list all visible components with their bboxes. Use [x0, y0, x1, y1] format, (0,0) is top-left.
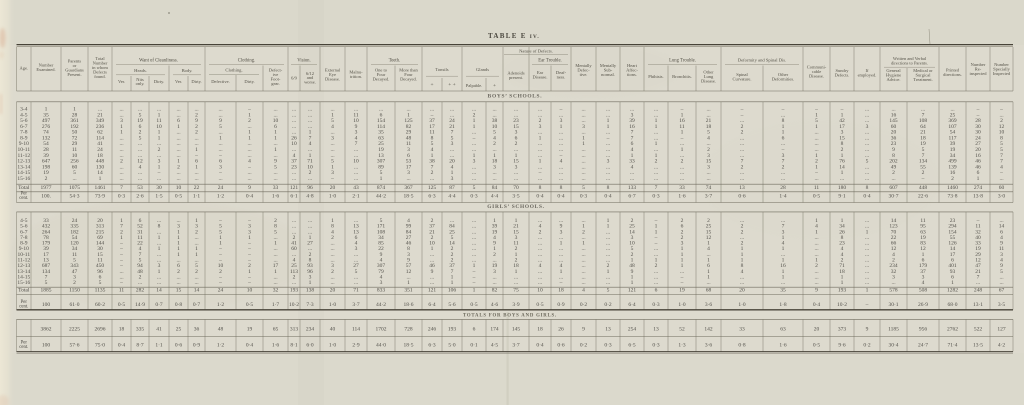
- svg-text:Written and Verbaldirections t: Written and Verbaldirections to Parents.: [891, 56, 928, 66]
- svg-text:Nature of Defects.: Nature of Defects.: [519, 48, 553, 53]
- svg-text:Palpable.: Palpable.: [466, 83, 483, 88]
- svg-text:NumberSpeciallyInspected: NumberSpeciallyInspected: [993, 62, 1011, 76]
- svg-text:Bronchitis.: Bronchitis.: [672, 74, 692, 79]
- svg-text:Nitsonly.: Nitsonly.: [136, 77, 145, 86]
- svg-text:GeneralHygieneAdvice.: GeneralHygieneAdvice.: [886, 68, 901, 82]
- svg-text:Body.: Body.: [182, 68, 193, 73]
- svg-text:GIRLS’ SCHOOLS.: GIRLS’ SCHOOLS.: [487, 204, 544, 210]
- svg-text:Teeth.: Teeth.: [389, 59, 401, 64]
- svg-text:6/9: 6/9: [291, 76, 298, 81]
- svg-text:SundryDefects.: SundryDefects.: [835, 68, 850, 78]
- svg-text:BOYS’ SCHOOLS.: BOYS’ SCHOOLS.: [488, 94, 543, 100]
- svg-text:Deaf-ness.: Deaf-ness.: [556, 70, 567, 80]
- svg-text:Ver.: Ver.: [175, 79, 182, 84]
- svg-text:Dirty.: Dirty.: [244, 79, 254, 84]
- svg-text:Adenoidspresent.: Adenoidspresent.: [507, 71, 524, 81]
- svg-text:Want of Cleanliness.: Want of Cleanliness.: [139, 59, 178, 64]
- svg-text:Glands: Glands: [476, 67, 489, 72]
- svg-text:HeartAffec-tions.: HeartAffec-tions.: [626, 63, 638, 77]
- svg-text:Dirty.: Dirty.: [191, 79, 201, 84]
- svg-text:+ +: + +: [448, 82, 455, 88]
- svg-text:Tonsils: Tonsils: [435, 67, 448, 72]
- svg-text:Dirty.: Dirty.: [154, 79, 164, 84]
- svg-text:Ear Trouble.: Ear Trouble.: [538, 59, 561, 64]
- svg-text:Malnu-trition.: Malnu-trition.: [349, 69, 363, 79]
- svg-text:Age.: Age.: [19, 66, 28, 71]
- svg-text:+: +: [430, 82, 433, 88]
- svg-text:TOTALS FOR BOYS AND GIRLS.: TOTALS FOR BOYS AND GIRLS.: [463, 313, 557, 318]
- svg-text:Heads.: Heads.: [134, 68, 147, 73]
- svg-text:Defective.: Defective.: [211, 79, 230, 84]
- svg-text:Ver.: Ver.: [118, 79, 125, 84]
- svg-text:TABLE E IV.: TABLE E IV.: [488, 32, 540, 40]
- svg-text:Phthisis.: Phthisis.: [648, 74, 663, 79]
- svg-text:NumberExamined.: NumberExamined.: [36, 63, 55, 73]
- svg-text:Deformity and Spinal Dis.: Deformity and Spinal Dis.: [738, 58, 786, 63]
- svg-text:Clothing.: Clothing.: [225, 68, 242, 73]
- svg-text:+: +: [493, 83, 496, 89]
- svg-text:Vision.: Vision.: [297, 59, 310, 64]
- svg-text:Lung Trouble.: Lung Trouble.: [669, 59, 696, 64]
- svg-text:Medical orSurgicalTreatment.: Medical orSurgicalTreatment.: [913, 68, 933, 82]
- svg-text:Clothing.: Clothing.: [238, 59, 256, 64]
